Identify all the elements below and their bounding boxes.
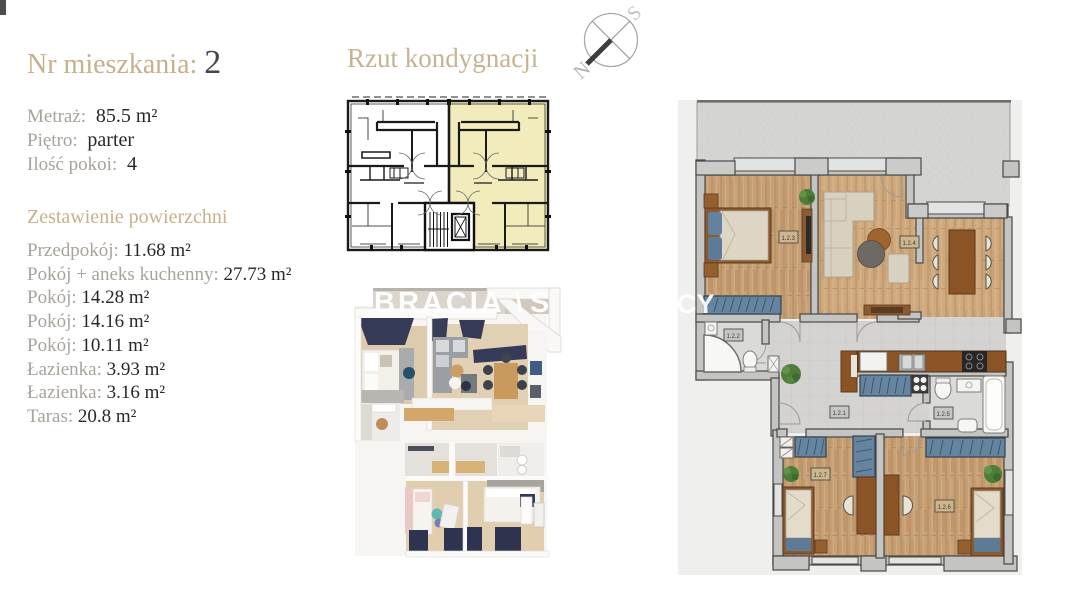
svg-text:1.2.3: 1.2.3 [782,236,796,242]
svg-text:1.2.2: 1.2.2 [727,334,741,340]
svg-text:S: S [623,2,646,25]
svg-text:1.2.6: 1.2.6 [938,505,952,511]
svg-text:1.2.4: 1.2.4 [903,241,917,247]
svg-text:1.2.5: 1.2.5 [937,412,951,418]
svg-text:1.2.7: 1.2.7 [814,473,828,479]
svg-text:1.2.1: 1.2.1 [833,411,847,417]
